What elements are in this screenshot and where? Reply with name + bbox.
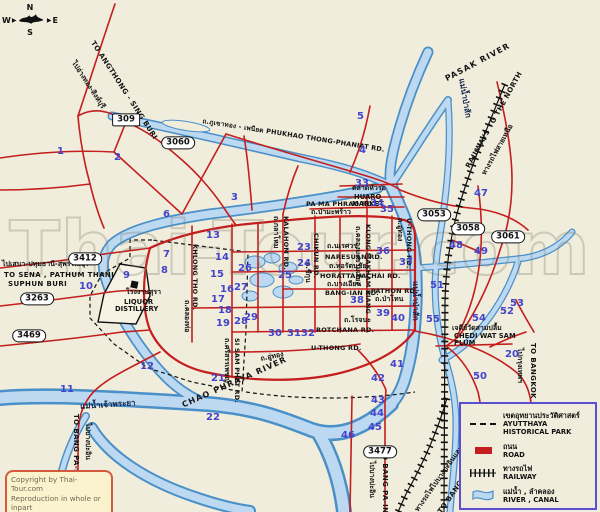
compass-east-label: E (53, 16, 58, 25)
map-label: SUPHUN BURI (8, 281, 67, 288)
legend-label-thai: แม่น้ำ , ลำคลอง (503, 487, 559, 496)
map-point-number: 6 (163, 210, 170, 220)
map-point-number: 33 (355, 179, 369, 189)
map-point-number: 3 (231, 193, 238, 203)
map-label: PA MA PHRAO RD. (306, 201, 375, 208)
map-point-number: 13 (206, 231, 220, 241)
compass-west-arrow-icon: ▶ (12, 17, 17, 24)
map-point-number: 11 (60, 385, 74, 395)
map-point-number: 17 (211, 295, 225, 305)
legend-item-road: ถนน ROAD (468, 442, 590, 459)
route-shield-3469: 3469 (12, 329, 46, 342)
map-label: แม่น้ำป่าสัก (411, 281, 419, 321)
map-label: เจดีย์วัดสามปลื้ม (452, 325, 502, 332)
map-point-number: 51 (430, 281, 444, 291)
legend-label-en: ROAD (503, 451, 525, 459)
route-shield-3058: 3058 (451, 222, 485, 235)
map-label: KALAHOM RD. (283, 216, 290, 270)
map-label: โรงงานสุรา (126, 289, 161, 296)
map-point-number: 27 (234, 283, 248, 293)
map-point-number: 53 (510, 299, 524, 309)
map-point-number: 5 (357, 112, 364, 122)
map-point-number: 20 (505, 350, 519, 360)
road-swatch-icon (475, 447, 492, 454)
map-point-number: 7 (163, 250, 170, 260)
map-point-number: 30 (268, 329, 282, 339)
map-point-number: 23 (297, 243, 311, 253)
ayutthaya-map: Thai-Tour.com TO ANGTHONG - SING BURIไปอ… (0, 0, 600, 512)
map-point-number: 2 (114, 153, 121, 163)
map-point-number: 14 (215, 253, 229, 263)
legend-label-en: AYUTTHAYA HISTORICAL PARK (503, 420, 590, 437)
map-point-number: 29 (244, 313, 258, 323)
compass-east-arrow-icon: ▶ (47, 17, 52, 24)
map-point-number: 38 (350, 296, 364, 306)
map-label: ถ.คลองมะขามเรียง (354, 226, 361, 285)
copyright-box: Copyright by Thai-Tour.com Reproduction … (5, 470, 113, 512)
legend-item-historical-park: เขตอุทยานประวัติศาสตร์ AYUTTHAYA HISTORI… (468, 411, 590, 437)
map-point-number: 49 (474, 247, 488, 257)
map-label: DISTILLERY (115, 306, 158, 313)
map-label: ถ.โรจนะ (344, 317, 371, 324)
map-label: ไปบางปะอิน (368, 461, 375, 498)
route-shield-3263: 3263 (20, 292, 54, 305)
map-point-number: 54 (472, 314, 486, 324)
copyright-line: Copyright by Thai-Tour.com (11, 475, 107, 494)
route-shield-3477: 3477 (363, 445, 397, 458)
map-point-number: 24 (297, 259, 311, 269)
map-point-number: 36 (376, 247, 390, 257)
map-point-number: 1 (57, 147, 64, 157)
map-point-number: 10 (79, 282, 93, 292)
map-label: PLUM (454, 340, 475, 347)
map-point-number: 42 (371, 374, 385, 384)
map-point-number: 55 (426, 315, 440, 325)
map-point-number: 4 (359, 146, 366, 156)
compass-north-label: N (2, 3, 58, 12)
map-point-number: 50 (473, 372, 487, 382)
map-point-number: 32 (301, 329, 315, 339)
map-label: CHIKUN RD. (313, 233, 320, 278)
map-point-number: 35 (380, 205, 394, 215)
river-swatch-icon (471, 488, 495, 503)
legend-label-en: RAILWAY (503, 473, 537, 481)
dashed-line-icon (470, 423, 496, 425)
map-point-number: 25 (278, 271, 292, 281)
map-point-number: 22 (206, 413, 220, 423)
map-label: SI SAM PHET RD. (234, 338, 241, 403)
map-label: TO BANG PA-IN (72, 414, 79, 478)
map-label: ถ.ป่าโทน (375, 296, 403, 303)
map-point-number: 40 (391, 314, 405, 324)
map-point-number: 41 (390, 360, 404, 370)
map-label: ถ.คลองท่อ (183, 300, 190, 332)
map-label: ถ.นเรศวร (327, 243, 357, 250)
route-shield-3061: 3061 (491, 230, 525, 243)
map-label: ไปบางปะอิน (84, 423, 91, 460)
map-label: U-THONG RD. (311, 345, 362, 352)
map-label: ถ.กลาโหม (272, 216, 279, 248)
map-point-number: 48 (449, 241, 463, 251)
map-point-number: 8 (161, 266, 168, 276)
map-point-number: 15 (210, 270, 224, 280)
legend-item-railway: ทางรถไฟ RAILWAY (468, 464, 590, 481)
map-legend: เขตอุทยานประวัติศาสตร์ AYUTTHAYA HISTORI… (459, 402, 597, 510)
map-label: TO BANG PA-IN (381, 449, 388, 512)
map-point-number: 12 (140, 362, 154, 372)
map-point-number: 47 (474, 189, 488, 199)
compass-south-label: S (2, 28, 58, 37)
thai-tour-bird-logo-icon (17, 12, 45, 28)
map-label: KHLONG THO RD. (192, 244, 199, 310)
map-label: ROTCHANA RD. (316, 327, 374, 334)
map-point-number: 9 (123, 271, 130, 281)
legend-label-en: RIVER , CANAL (503, 496, 559, 504)
copyright-line: Reproduction in whole or inpart (11, 494, 107, 512)
legend-label-thai: ถนน (503, 442, 525, 451)
ponds (242, 253, 303, 301)
map-label: ถ.อู่ทอง (396, 218, 403, 241)
legend-item-river: แม่น้ำ , ลำคลอง RIVER , CANAL (468, 487, 590, 504)
map-point-number: 45 (368, 423, 382, 433)
map-label: TO SENA , PATHUM THANI (4, 272, 114, 279)
map-point-number: 31 (287, 329, 301, 339)
map-point-number: 26 (238, 264, 252, 274)
map-point-number: 21 (211, 374, 225, 384)
map-point-number: 43 (371, 396, 385, 406)
route-shield-309: 309 (112, 113, 140, 126)
map-label: KLONG MAKHAM RIANG (365, 224, 372, 314)
map-point-number: 39 (376, 309, 390, 319)
map-point-number: 19 (216, 319, 230, 329)
map-point-number: 37 (399, 258, 413, 268)
map-point-number: 44 (370, 409, 384, 419)
route-shield-3412: 3412 (68, 252, 102, 265)
route-shield-3053: 3053 (417, 208, 451, 221)
railway-line-icon (470, 469, 496, 477)
legend-label-thai: เขตอุทยานประวัติศาสตร์ (503, 411, 590, 420)
route-shield-3060: 3060 (161, 136, 195, 149)
map-label: ถ.ป่ามะพร้าว (311, 209, 351, 216)
compass-west-label: W (2, 16, 11, 25)
map-point-number: 18 (218, 306, 232, 316)
legend-label-thai: ทางรถไฟ (503, 464, 537, 473)
map-point-number: 46 (341, 431, 355, 441)
map-label: TO BANGKOK (529, 343, 536, 399)
compass-rose: N W ▶ ▶ E S (2, 3, 58, 37)
